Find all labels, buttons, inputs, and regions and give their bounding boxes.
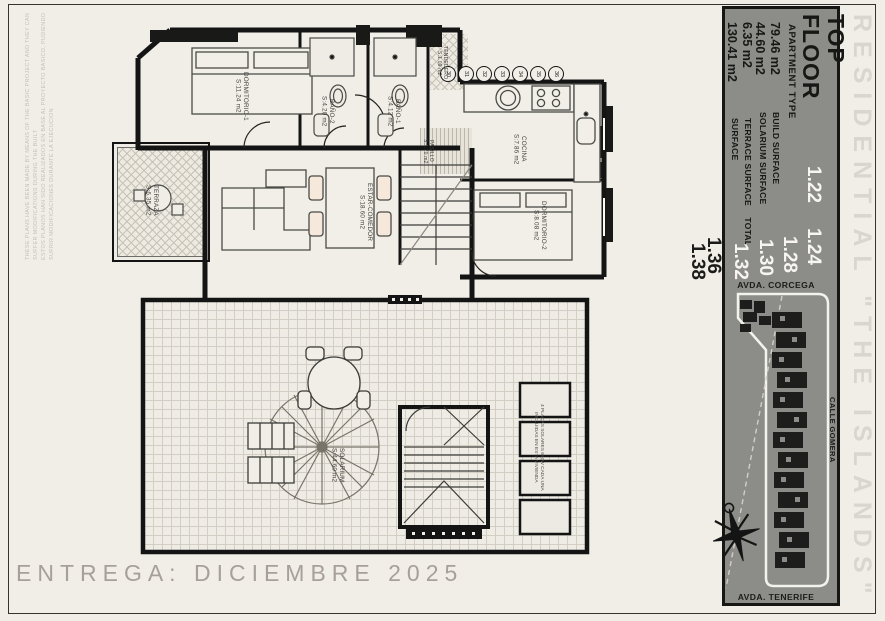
solarium-drawing (138, 295, 598, 563)
solarium-surface-value: 44.60 m2 (753, 22, 767, 75)
position-number-circle: 34 (512, 66, 528, 82)
terrace-surface-value: 6.35 m2 (740, 22, 754, 68)
apartment-number: 1.24 (802, 228, 824, 265)
surface-columns-2: TERRACE SURFACE TOTAL SURFACE 6.35 m2 13… (724, 22, 754, 247)
room-label-dormitorio-2: DORMITORIO-2S:8.08 m2 (532, 186, 547, 264)
build-surface-label: BUILD SURFACE (771, 112, 781, 184)
disclaimer-note: THESE PLANS HAVE BEEN MADE BY MEANS OF T… (24, 10, 44, 260)
solarium-surface-label: SOLARIUM SURFACE (758, 112, 768, 204)
position-number: 32 (481, 71, 487, 77)
delivery-date-banner: ENTREGA: DICIEMBRE 2025 (16, 560, 463, 587)
apartment-type-label: APARTMENT TYPE (786, 24, 797, 134)
apartment-number: 1.30 (754, 239, 776, 276)
plan-sheet: THESE PLANS HAVE BEEN MADE BY MEANS OF T… (0, 0, 885, 621)
top-floor-plan: 30 31 32 33 34 35 36 DORMITORIO-1S:11.24… (108, 22, 620, 342)
solar-panels-note: 4 PLACAS SOLARES 600W CADA UNA INCLUIDAS… (532, 387, 544, 507)
build-surface-value: 79.46 m2 (768, 22, 782, 75)
brand-title: RESIDENTIAL "THE ISLANDS" (845, 8, 879, 608)
room-label-bano-2: BAÑO-2S:4.20 m2 (320, 78, 335, 144)
disclaimer-line-es: ESTOS PLANOS HAN SIDO REALIZADOS EN BASE… (40, 10, 56, 260)
room-label-terraza: TERRAZAS:6.35 m2 (144, 164, 159, 236)
position-number: 35 (535, 71, 541, 77)
room-label-pasillo: PASILLOS:1.70 m2 (422, 130, 434, 172)
room-label-cocina: COCINAS:7.86 m2 (512, 120, 527, 178)
position-number: 33 (499, 71, 505, 77)
apartment-number: 1.32 (729, 243, 751, 280)
room-label-estar-comedor: ESTAR-COMEDORS:18.60 m2 (358, 162, 373, 262)
room-label-solarium: SOLARIUMS:44.60 m2 (330, 423, 345, 507)
position-number-circle: 31 (458, 66, 474, 82)
solarium-plan: SOLARIUMS:44.60 m2 4 PLACAS SOLARES 600W… (138, 295, 598, 563)
surface-columns-1: BUILD SURFACE SOLARIUM SURFACE 79.46 m2 … (752, 22, 782, 234)
floor-title: TOP FLOOR (798, 14, 848, 154)
position-number-circle: 36 (548, 66, 564, 82)
compass-rose-icon (704, 498, 768, 570)
room-label-tendedero: TENDEDEROS:1.09 m2 (436, 38, 448, 88)
position-number: 31 (463, 71, 469, 77)
total-surface-value: 130.41 m2 (725, 22, 739, 82)
apartment-number: 1.28 (778, 236, 800, 273)
street-label-right: CALLE GOMERA (828, 388, 837, 472)
disclaimer-line-en: THESE PLANS HAVE BEEN MADE BY MEANS OF T… (24, 10, 40, 260)
position-number: 36 (553, 71, 559, 77)
street-label-bottom: AVDA. TENERIFE (724, 592, 828, 602)
position-number-circle: 32 (476, 66, 492, 82)
position-number-circle: 35 (530, 66, 546, 82)
position-number-circle: 33 (494, 66, 510, 82)
apartment-number: 1.38 (686, 243, 708, 280)
room-label-bano-1: BAÑO-1S:4.12 m2 (386, 78, 401, 144)
position-number: 34 (517, 71, 523, 77)
room-label-dormitorio-1: DORMITORIO-1S:11.24 m2 (234, 50, 249, 142)
apartment-number: 1.22 (802, 166, 824, 203)
terrace-surface-label: TERRACE SURFACE (743, 118, 753, 206)
